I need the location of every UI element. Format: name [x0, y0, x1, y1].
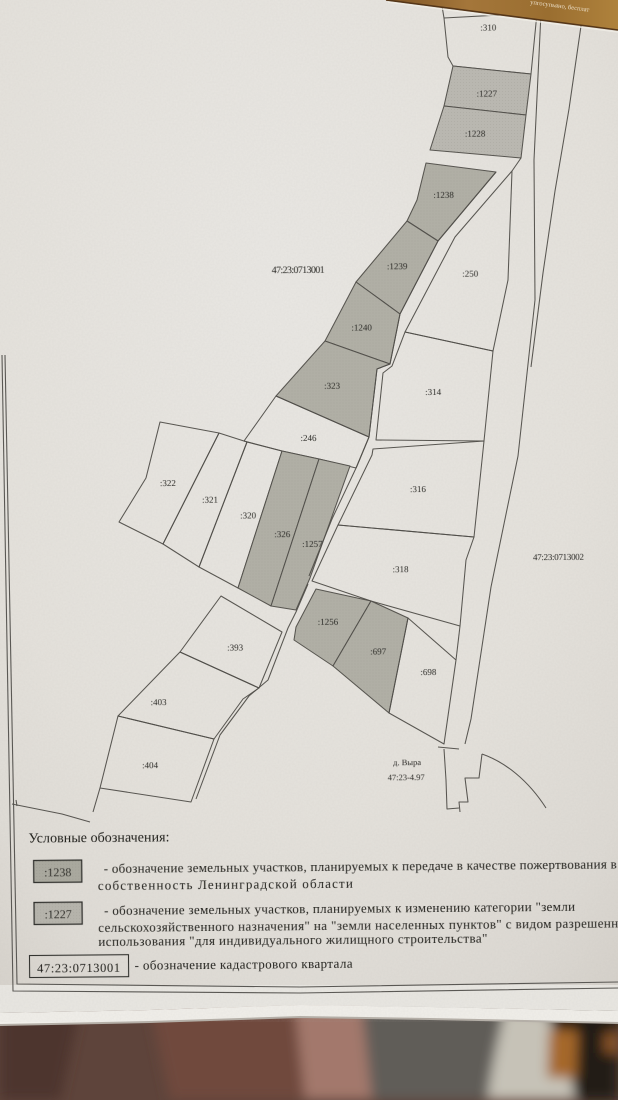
svg-text:- обозначение кадастрового ква: - обозначение кадастрового квартала: [134, 956, 352, 973]
svg-text::1238: :1238: [44, 865, 71, 879]
svg-text:47:23:0713001: 47:23:0713001: [37, 961, 120, 976]
svg-text:Условные обозначения:: Условные обозначения:: [28, 830, 169, 846]
svg-text::1227: :1227: [44, 907, 71, 921]
svg-text:собственность Ленинградской об: собственность Ленинградской области: [98, 876, 353, 893]
